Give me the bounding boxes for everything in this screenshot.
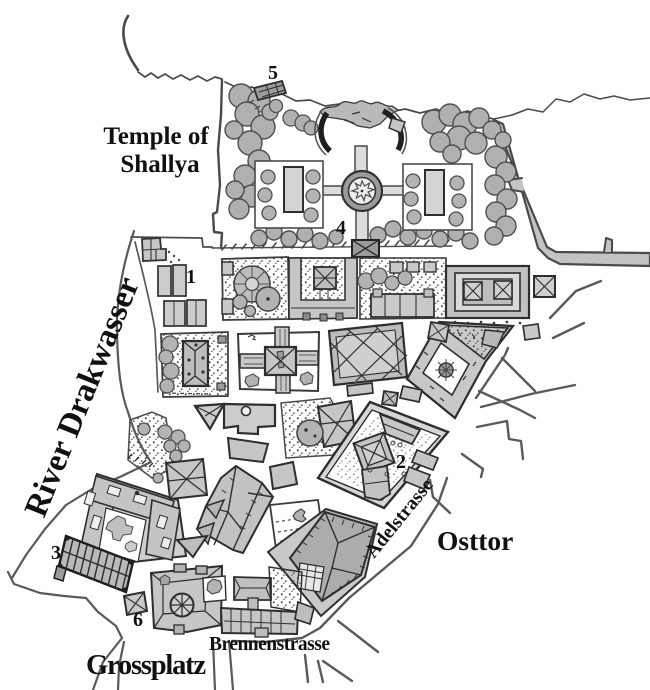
svg-text:6: 6 bbox=[133, 609, 143, 631]
svg-text:3: 3 bbox=[51, 542, 61, 564]
svg-text:4: 4 bbox=[336, 217, 346, 239]
svg-text:1: 1 bbox=[186, 266, 196, 288]
svg-text:Osttor: Osttor bbox=[437, 525, 513, 556]
svg-text:5: 5 bbox=[268, 62, 278, 84]
svg-text:Temple of: Temple of bbox=[103, 123, 209, 150]
svg-text:2: 2 bbox=[396, 451, 406, 473]
svg-text:Grossplatz: Grossplatz bbox=[86, 650, 206, 681]
svg-text:Shallya: Shallya bbox=[120, 151, 200, 178]
svg-text:Brennenstrasse: Brennenstrasse bbox=[209, 634, 330, 655]
